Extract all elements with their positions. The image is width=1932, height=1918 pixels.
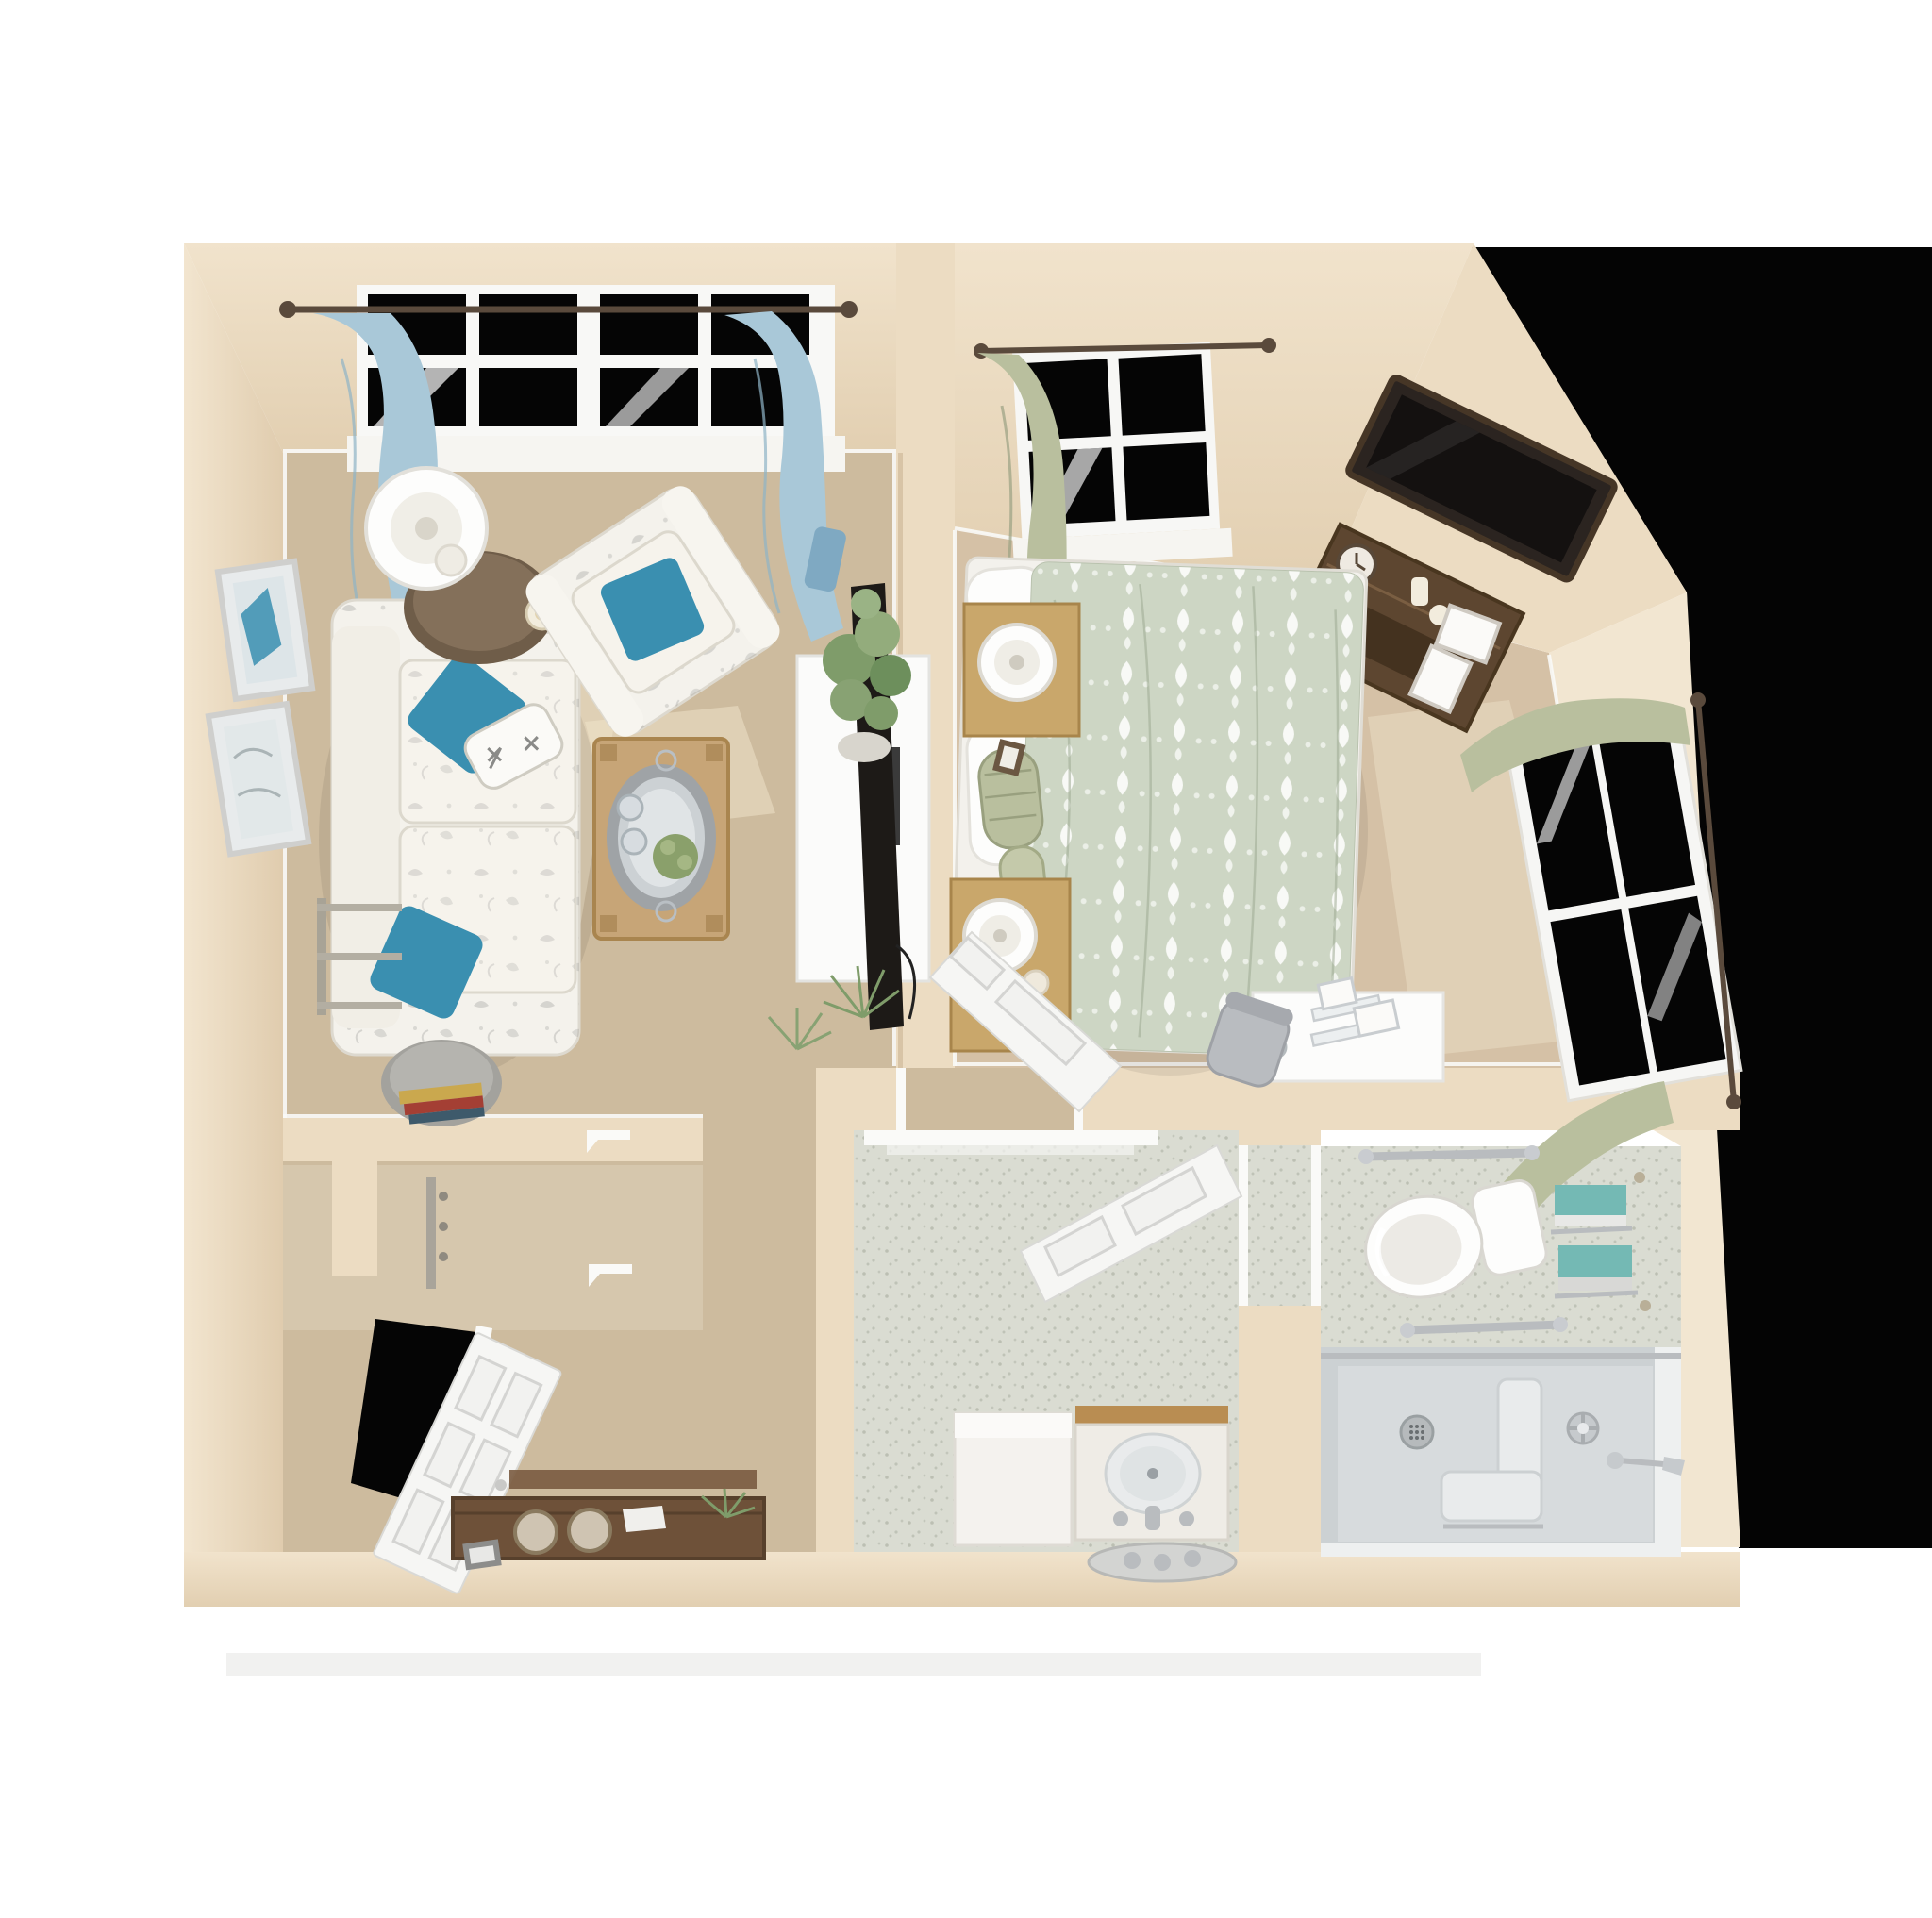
faucet-handle [1113, 1511, 1128, 1526]
shelf-plank [509, 1470, 757, 1489]
grab-bar [1407, 1325, 1560, 1330]
papers [623, 1506, 666, 1532]
drum-end-table [381, 1040, 502, 1126]
door-threshold [887, 1145, 1134, 1155]
rod-finial [1726, 1094, 1741, 1109]
leaning-oval-tray [1089, 1543, 1236, 1581]
roll-in-shower [1321, 1347, 1685, 1557]
wall-anchor [1640, 1300, 1651, 1311]
window-pane [600, 294, 698, 355]
storage-cabinet [955, 1413, 1072, 1545]
window-pane [1123, 442, 1209, 520]
succulent [653, 834, 698, 879]
grab-bar-mount [1553, 1317, 1568, 1332]
closet-wall-stub [332, 1161, 377, 1276]
rod-finial [1261, 338, 1276, 353]
grab-bar-mount [1358, 1149, 1374, 1164]
picture-frame [1318, 978, 1357, 1009]
rod-finial [841, 301, 858, 318]
door-threshold [864, 1130, 1158, 1145]
wall-mirror-top [218, 561, 312, 699]
window-pane [479, 294, 577, 355]
wall-anchor [1634, 1172, 1645, 1183]
faucet [1145, 1506, 1160, 1530]
white-towel [1555, 1215, 1626, 1226]
candle [1411, 577, 1428, 606]
floor-plan-rendering [0, 0, 1932, 1918]
glass-jar [622, 829, 646, 854]
door-jamb [1311, 1145, 1321, 1306]
vanity-sink [1075, 1406, 1228, 1540]
table-lamp [366, 468, 487, 589]
closet-wall [283, 1118, 703, 1161]
picture-frame [1354, 1000, 1398, 1036]
rod-finial [1690, 692, 1706, 708]
shower-valve [1568, 1413, 1598, 1443]
coffee-table [594, 739, 728, 939]
grab-bar-mount [1400, 1323, 1415, 1338]
grab-bar [1366, 1153, 1532, 1157]
bathroom-doorway [1239, 1145, 1321, 1306]
round-knob [515, 1511, 557, 1553]
shower-wall [1655, 1347, 1681, 1557]
sofa [332, 600, 579, 1055]
grab-bar-mount [1524, 1145, 1540, 1160]
drain [1147, 1468, 1158, 1479]
ground-shadow [226, 1653, 1481, 1676]
glass-jar [618, 795, 642, 820]
door-jamb [896, 1068, 906, 1130]
entry-vanity-wall [816, 1130, 854, 1555]
floor-plan-stage [0, 0, 1932, 1918]
rod-finial [279, 301, 296, 318]
window-pane [1118, 354, 1205, 435]
shower-curb [1321, 1543, 1681, 1557]
door-jamb [1239, 1145, 1248, 1306]
round-knob [569, 1509, 610, 1551]
faucet-handle [1179, 1511, 1194, 1526]
window-pane [479, 368, 577, 426]
gray-towel [1558, 1277, 1632, 1291]
left-wall [184, 243, 283, 1555]
